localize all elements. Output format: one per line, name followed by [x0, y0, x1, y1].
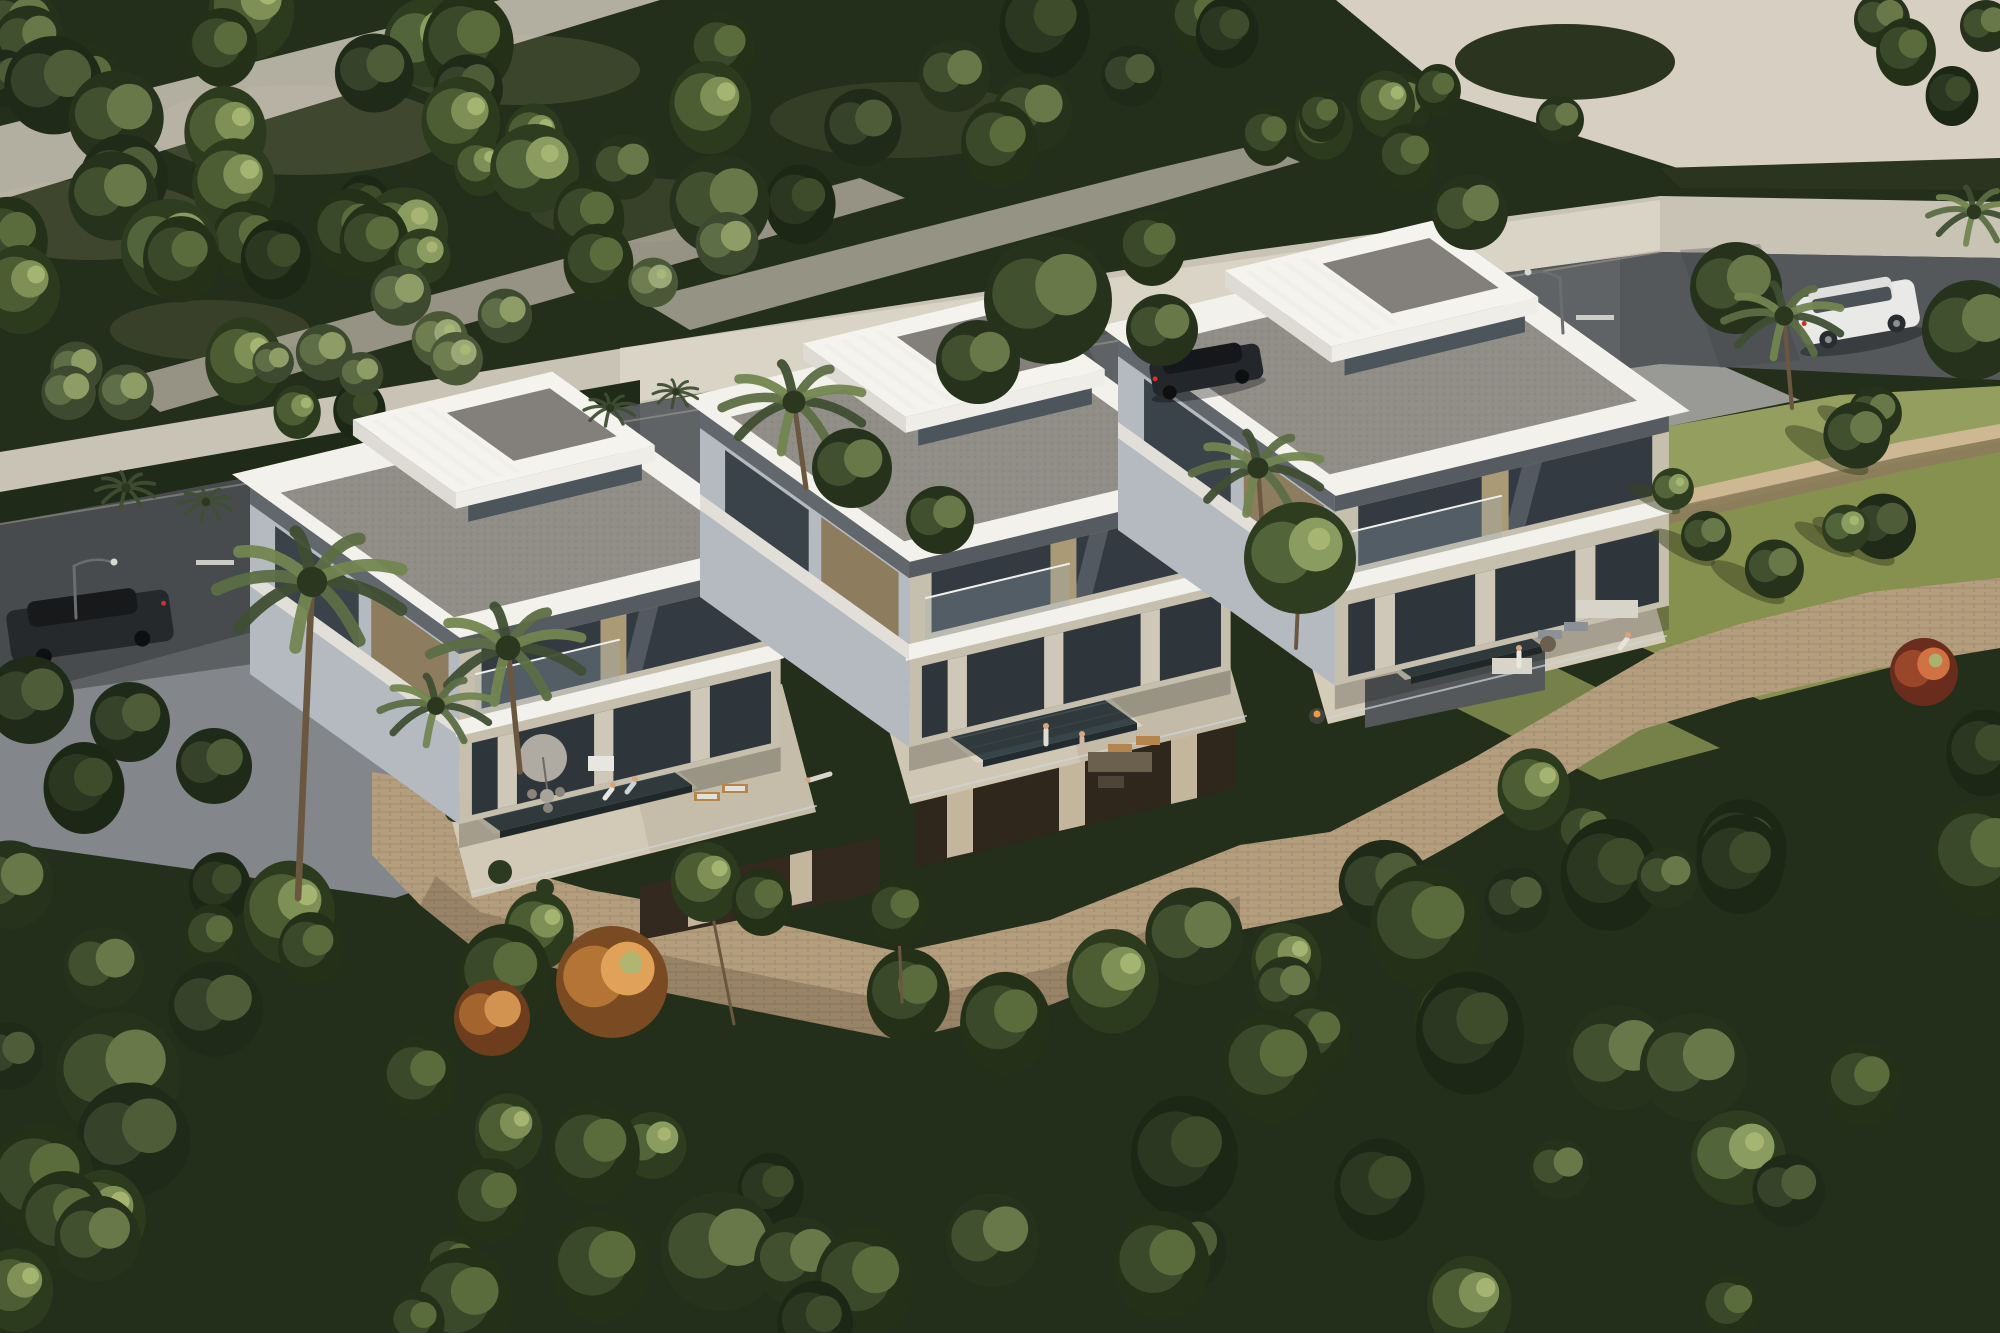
- sun-lounger: [1108, 744, 1132, 753]
- canopy-light: [1781, 1165, 1816, 1200]
- patio-chair: [555, 787, 565, 797]
- canopy-highlight: [514, 1111, 529, 1126]
- canopy-highlight: [1929, 654, 1943, 668]
- canopy-light: [1280, 965, 1310, 995]
- broadleaf-tree: [1101, 46, 1162, 107]
- canopy-light: [855, 100, 892, 137]
- person-head: [1079, 731, 1085, 737]
- palm-crown: [427, 697, 445, 715]
- autumn-tree: [556, 926, 668, 1038]
- canopy-light: [411, 1302, 437, 1328]
- canopy-light: [74, 758, 113, 797]
- patio-chair: [527, 789, 537, 799]
- canopy-light: [366, 216, 399, 249]
- outdoor-sofa: [1576, 600, 1638, 618]
- wall-creeper: [488, 860, 512, 884]
- palm-crown: [782, 390, 805, 413]
- conifer-tree: [185, 904, 242, 968]
- broadleaf-tree: [176, 728, 252, 804]
- sun-lounger: [1136, 736, 1160, 745]
- canopy-light: [21, 668, 63, 710]
- canopy-highlight: [232, 108, 251, 127]
- canopy-light: [303, 925, 334, 956]
- lounger-pad: [697, 794, 717, 799]
- olive-tree: [252, 342, 294, 384]
- conifer-tree: [1926, 66, 1979, 126]
- conifer-tree: [188, 8, 258, 87]
- olive-tree: [41, 366, 95, 420]
- conifer-tree: [1222, 1010, 1321, 1123]
- broadleaf-tree: [906, 486, 974, 554]
- lounger-pad: [725, 786, 745, 791]
- canopy-highlight: [657, 269, 667, 279]
- lane-dash: [196, 560, 234, 565]
- canopy-light: [214, 21, 247, 54]
- canopy-light: [357, 358, 378, 379]
- canopy-highlight: [620, 952, 642, 974]
- canopy-light: [1401, 136, 1430, 165]
- olive-tree: [696, 212, 759, 275]
- canopy-light: [710, 168, 758, 216]
- canopy-highlight: [1308, 528, 1330, 550]
- palm-crown: [606, 404, 614, 412]
- canopy-light: [714, 25, 745, 56]
- conifer-tree: [1335, 1138, 1425, 1240]
- conifer-tree: [1131, 1096, 1238, 1218]
- canopy-light: [1412, 886, 1465, 939]
- canopy-highlight: [1539, 767, 1555, 783]
- person-head: [632, 776, 638, 782]
- broadleaf-tree: [1484, 868, 1549, 933]
- canopy-light: [122, 693, 160, 731]
- canopy-light: [1144, 223, 1176, 255]
- palm-crown: [1247, 457, 1268, 478]
- canopy-light: [171, 231, 207, 267]
- conifer-tree: [1242, 106, 1295, 166]
- canopy-light: [1877, 503, 1909, 535]
- canopy-light: [1727, 255, 1771, 299]
- person-head: [1516, 645, 1522, 651]
- conifer-tree: [453, 1158, 528, 1243]
- canopy-light: [1184, 901, 1231, 948]
- olive-tree: [628, 258, 678, 308]
- canopy-light: [104, 164, 147, 207]
- lamp-pole: [74, 566, 76, 618]
- person-standing: [1516, 645, 1522, 666]
- conifer-tree: [1416, 971, 1524, 1094]
- canopy-light: [1769, 548, 1797, 576]
- canopy-light: [96, 939, 135, 978]
- canopy-light: [1432, 73, 1454, 95]
- lane-dash: [1576, 315, 1614, 320]
- broadleaf-tree: [824, 89, 901, 166]
- canopy-light: [0, 212, 36, 250]
- canopy-light: [806, 1296, 842, 1332]
- canopy-light: [89, 1207, 130, 1248]
- terrace-pier: [948, 655, 967, 732]
- canopy-light: [1368, 1156, 1411, 1199]
- canopy-light: [970, 332, 1010, 372]
- canopy-highlight: [1476, 1278, 1495, 1297]
- undercroft-pier: [790, 850, 812, 906]
- canopy-highlight: [1120, 953, 1141, 974]
- canopy-light: [898, 965, 937, 1004]
- canopy-light: [63, 373, 89, 399]
- conifer-tree: [549, 1101, 639, 1204]
- conifer-tree: [765, 164, 835, 244]
- olive-tree: [430, 332, 483, 385]
- canopy-light: [319, 332, 346, 359]
- canopy-light: [1555, 103, 1578, 126]
- conifer-tree: [867, 949, 950, 1043]
- canopy-highlight: [541, 144, 559, 162]
- canopy-highlight: [27, 266, 45, 284]
- palm-crown: [297, 567, 327, 597]
- canopy-light: [1149, 1230, 1195, 1276]
- canopy-light: [2, 1032, 34, 1064]
- conifer-tree: [143, 216, 219, 302]
- conifer-tree: [273, 385, 320, 439]
- canopy-light: [1171, 1116, 1222, 1167]
- broadleaf-tree: [1145, 888, 1243, 986]
- broadleaf-tree: [1126, 294, 1198, 366]
- conifer-tree: [564, 224, 634, 303]
- canopy-light: [1945, 76, 1970, 101]
- palm-crown: [496, 636, 521, 661]
- fire-pit-flame: [1314, 711, 1321, 718]
- person-head: [1043, 723, 1049, 729]
- canopy-light: [500, 296, 526, 322]
- conifer-tree: [1119, 210, 1186, 286]
- terrace-pier: [691, 686, 710, 763]
- conifer-tree: [44, 742, 125, 834]
- broadleaf-tree: [1536, 96, 1584, 144]
- canopy-light: [107, 84, 153, 130]
- broadleaf-tree: [168, 962, 263, 1057]
- canopy-light: [206, 915, 233, 942]
- olive-tree: [371, 265, 432, 326]
- conifer-tree: [1876, 18, 1936, 86]
- broadleaf-tree: [812, 428, 892, 508]
- canopy-light: [1683, 1028, 1735, 1080]
- olive-tree: [478, 289, 532, 343]
- canopy-highlight: [544, 909, 560, 925]
- canopy-light: [1729, 832, 1771, 874]
- conifer-tree: [732, 868, 792, 936]
- conifer-tree: [1299, 90, 1345, 142]
- lamp-head: [1525, 269, 1532, 276]
- terrace-pier: [594, 709, 613, 786]
- scene-root: [0, 0, 2000, 1333]
- conifer-tree: [1378, 124, 1438, 192]
- canopy-light: [481, 1172, 517, 1208]
- canopy-light: [269, 348, 289, 368]
- canopy-light: [267, 234, 300, 267]
- palm-crown: [202, 498, 211, 507]
- plaza-grass-island: [1455, 24, 1675, 100]
- canopy-light: [1260, 1029, 1307, 1076]
- canopy-light: [994, 989, 1037, 1032]
- canopy-highlight: [301, 398, 312, 409]
- broadleaf-tree: [945, 1193, 1039, 1287]
- canopy-highlight: [467, 97, 485, 115]
- lamp-head: [111, 559, 118, 566]
- patio-chair: [543, 803, 553, 813]
- terrace-pier: [498, 732, 517, 809]
- red-tree: [1890, 638, 1958, 706]
- undercroft-pier: [1059, 759, 1085, 831]
- canopy-light: [206, 739, 242, 775]
- canopy-light: [933, 496, 966, 529]
- broadleaf-tree: [1432, 174, 1508, 250]
- conifer-tree: [669, 61, 751, 154]
- undercroft-pier: [1171, 732, 1197, 804]
- sun-lounger: [1564, 622, 1588, 631]
- canopy-light: [105, 1030, 165, 1090]
- canopy-light: [484, 991, 520, 1027]
- canopy-light: [410, 1050, 446, 1086]
- patio-table: [540, 789, 554, 803]
- canopy-light: [1025, 85, 1063, 123]
- canopy-light: [844, 439, 882, 477]
- canopy-light: [983, 1206, 1028, 1251]
- canopy-light: [1661, 856, 1690, 885]
- conifer-tree: [1826, 1042, 1900, 1127]
- palm-crown: [672, 388, 679, 395]
- conifer-tree: [1113, 1211, 1209, 1320]
- conifer-tree: [382, 1036, 457, 1121]
- broadleaf-tree: [918, 40, 990, 112]
- olive-tree: [98, 365, 153, 420]
- terrace-pier: [1475, 569, 1495, 646]
- canopy-light: [1125, 54, 1154, 83]
- person-head: [805, 777, 810, 782]
- canopy-light: [1035, 254, 1096, 315]
- canopy-light: [1261, 116, 1286, 141]
- canopy-light: [891, 890, 920, 919]
- canopy-highlight: [712, 860, 728, 876]
- canopy-light: [762, 1166, 794, 1198]
- canopy-light: [122, 1098, 177, 1153]
- conifer-tree: [1498, 748, 1570, 830]
- canopy-light: [451, 1267, 499, 1315]
- autumn-tree: [454, 980, 530, 1056]
- canopy-highlight: [426, 241, 437, 252]
- canopy-highlight: [411, 207, 428, 224]
- conifer-tree: [1415, 64, 1461, 116]
- canopy-highlight: [1391, 86, 1404, 99]
- conifer-tree: [961, 101, 1037, 187]
- conifer-tree: [278, 912, 343, 986]
- person-standing: [1079, 731, 1085, 752]
- conifer-tree: [1067, 929, 1159, 1034]
- broadleaf-tree: [63, 927, 144, 1008]
- palm-crown: [121, 483, 131, 493]
- conifer-tree: [241, 220, 311, 299]
- canopy-light: [590, 237, 623, 270]
- canopy-light: [493, 942, 537, 986]
- broadleaf-tree: [1529, 1139, 1590, 1200]
- canopy-light: [395, 274, 424, 303]
- canopy-light: [1724, 1285, 1752, 1313]
- canopy-highlight: [1292, 941, 1308, 957]
- terrace-pier: [1141, 609, 1160, 686]
- canopy-highlight: [22, 1267, 39, 1284]
- person-standing: [1043, 723, 1049, 744]
- canopy-light: [120, 372, 147, 399]
- canopy-light: [589, 1231, 636, 1278]
- canopy-highlight: [460, 344, 471, 355]
- architectural-render-canvas: [0, 0, 2000, 1333]
- canopy-light: [1155, 304, 1190, 339]
- canopy-light: [852, 1246, 899, 1293]
- person-head: [1625, 632, 1631, 638]
- broadleaf-tree: [1752, 1155, 1824, 1227]
- canopy-light: [1, 853, 44, 896]
- canopy-light: [1850, 411, 1882, 443]
- conifer-tree: [1696, 815, 1783, 914]
- broadleaf-tree: [936, 320, 1020, 404]
- outdoor-sofa: [1088, 752, 1152, 772]
- canopy-light: [1316, 99, 1338, 121]
- canopy-light: [755, 880, 784, 909]
- canopy-light: [618, 144, 649, 175]
- canopy-light: [457, 10, 500, 53]
- conifer-tree: [1196, 0, 1259, 68]
- broadleaf-tree: [54, 1195, 140, 1281]
- canopy-light: [721, 221, 751, 251]
- outdoor-grill: [588, 756, 614, 771]
- canopy-light: [583, 1119, 626, 1162]
- undercroft-pier: [947, 786, 973, 858]
- canopy-light: [1510, 877, 1541, 908]
- canopy-light: [947, 50, 982, 85]
- canopy-light: [1701, 518, 1725, 542]
- canopy-light: [206, 975, 252, 1021]
- canopy-highlight: [1676, 478, 1684, 486]
- canopy-light: [1899, 30, 1928, 59]
- palm-crown: [1774, 306, 1793, 325]
- canopy-light: [792, 178, 826, 212]
- conifer-tree: [960, 972, 1051, 1075]
- coffee-table: [1540, 636, 1556, 652]
- canopy-light: [580, 192, 614, 226]
- broadleaf-tree: [1640, 1013, 1748, 1121]
- canopy-light: [1456, 992, 1508, 1044]
- coffee-table: [1098, 776, 1124, 788]
- canopy-highlight: [1849, 516, 1859, 526]
- conifer-tree: [552, 1212, 650, 1323]
- person-head: [610, 782, 616, 788]
- canopy-highlight: [717, 82, 736, 101]
- canopy-light: [1554, 1147, 1583, 1176]
- olive-tree: [339, 352, 384, 397]
- palm-crown: [1967, 205, 1982, 220]
- terrace-pier: [1375, 593, 1395, 670]
- terrace-pier: [1044, 632, 1063, 709]
- canopy-highlight: [1745, 1132, 1764, 1151]
- canopy-highlight: [240, 160, 259, 179]
- canopy-light: [366, 45, 404, 83]
- canopy-highlight: [658, 1127, 671, 1140]
- canopy-light: [1854, 1056, 1890, 1092]
- broadleaf-tree: [335, 34, 414, 113]
- canopy-light: [212, 864, 242, 894]
- canopy-light: [1462, 185, 1498, 221]
- broadleaf-tree: [1637, 848, 1698, 909]
- canopy-light: [1219, 9, 1249, 39]
- outdoor-sofa: [1492, 658, 1532, 674]
- villa-aerial-render: [0, 0, 2000, 1333]
- canopy-light: [990, 116, 1026, 152]
